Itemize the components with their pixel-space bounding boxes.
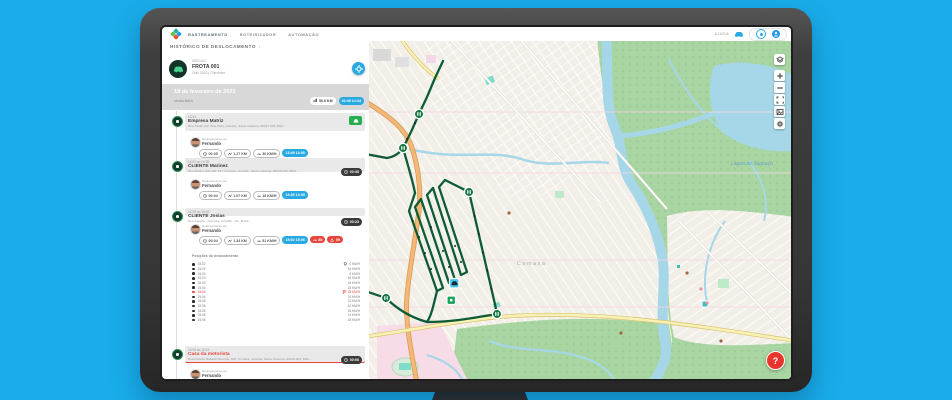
route-icon: [228, 152, 232, 156]
timeline-node: [172, 116, 183, 127]
timeline-node: [172, 211, 183, 222]
satellite-button[interactable]: [774, 106, 785, 117]
clock-icon: [203, 239, 207, 243]
fullscreen-button[interactable]: [774, 94, 785, 105]
trip-timerange-badge: 13:49 14:00: [282, 149, 307, 157]
stop-address: Rua Albano Schmidt, 517, Comasa, Joinvil…: [188, 169, 333, 173]
chart-icon: [313, 98, 318, 103]
satellite-icon: [776, 108, 784, 116]
layers-button[interactable]: [774, 54, 785, 65]
screen: RASTREAMENTOROTEIRIZADORAUTOMAÇÃO AJUDA …: [162, 27, 791, 379]
menu-item-rastreamento[interactable]: RASTREAMENTO: [188, 32, 228, 37]
layers-icon: [776, 56, 784, 64]
timeline-node: [172, 349, 183, 360]
map[interactable]: Comasa Lagoa do Saguaçu ?: [369, 41, 791, 379]
history-panel: HISTÓRICO DE DESLOCAMENTO› VEÍCULO FROTA…: [162, 41, 370, 379]
selected-position-marker-icon: [450, 279, 460, 289]
position-dot: [192, 268, 195, 271]
position-dot: [192, 310, 195, 313]
trip-alert-badge: 09: [327, 236, 343, 243]
menu-item-roteirizador[interactable]: ROTEIRIZADOR: [240, 32, 276, 37]
map-help-button[interactable]: ?: [766, 351, 785, 370]
driver-avatar: [190, 224, 201, 235]
gauge-icon: [257, 152, 261, 156]
settings-icon: [776, 120, 784, 128]
zoom-out-button[interactable]: [774, 82, 785, 93]
menu-item-automação[interactable]: AUTOMAÇÃO: [288, 32, 319, 37]
trip-detail: Deslocamento por Fernando00:04 1.07 KM 1…: [190, 179, 366, 199]
gauge-icon: [257, 239, 261, 243]
trip-speed-badge: 18 KM/H: [253, 191, 281, 200]
main-menu: RASTREAMENTOROTEIRIZADORAUTOMAÇÃO: [188, 27, 319, 41]
driver-avatar: [190, 369, 201, 379]
show-route-button[interactable]: [349, 116, 362, 125]
compass-icon[interactable]: [756, 29, 766, 39]
vehicle-model: Onix 2020 | Chevrolet: [192, 71, 225, 75]
stop-duration-badge: 00:35: [341, 168, 362, 176]
stop-address: Rua Prefeito Baltazar Buschle, 825, Coma…: [188, 357, 333, 361]
trip-distance-badge: 1.07 KM: [224, 191, 251, 200]
stop-address: Rua Itaperiú - Comasa, Joinville - SC, B…: [188, 219, 333, 223]
clock-icon: [203, 152, 207, 156]
trip-driver-name: Fernando: [202, 183, 221, 188]
trip-driver-name: Fernando: [202, 228, 221, 233]
stop-marker-icon: [492, 309, 501, 318]
position-speed: 18 KM/H: [348, 318, 360, 322]
trip-speed-badge: 30 KM/H: [253, 149, 281, 158]
help-link[interactable]: AJUDA: [715, 32, 729, 36]
position-dot: [192, 300, 195, 303]
stop-marker-icon: [381, 293, 390, 302]
app-logo-icon: [171, 29, 181, 39]
position-dot: [192, 296, 195, 299]
gauge-icon: [313, 238, 317, 242]
stop-marker-icon: [398, 143, 407, 152]
app-topbar: RASTREAMENTOROTEIRIZADORAUTOMAÇÃO AJUDA: [162, 27, 791, 42]
map-canvas: Comasa Lagoa do Saguaçu: [369, 41, 791, 379]
settings-button[interactable]: [774, 118, 785, 129]
client-marker-icon: [447, 296, 456, 305]
stop-marker-icon: [464, 187, 473, 196]
zoom-in-icon: [776, 72, 784, 80]
user-avatar-icon[interactable]: [772, 30, 780, 38]
timeline-stop-card[interactable]: 13:49 Empresa Matriz Rua Xavier Arp, Boa…: [185, 113, 365, 131]
trip-duration-badge: 00:04: [199, 191, 222, 200]
trip-detail: Deslocamento por Fernando: [190, 369, 366, 379]
timeline-node: [172, 161, 183, 172]
water-label: Lagoa do Saguaçu: [731, 161, 773, 167]
account-pill: [749, 28, 787, 41]
trip-timerange-badge: 14:35 14:39: [282, 191, 307, 199]
position-dot: [192, 277, 195, 280]
driver-avatar: [190, 137, 201, 148]
position-dot: [192, 286, 195, 289]
position-dot: [192, 291, 195, 294]
trip-duration-badge: 00:05: [199, 149, 222, 158]
vehicle-name: FROTA 001: [192, 64, 219, 70]
trip-driver-name: Fernando: [202, 141, 221, 146]
position-dot: [192, 305, 195, 308]
clock-icon: [344, 170, 348, 174]
gauge-icon: [257, 194, 261, 198]
district-label: Comasa: [517, 261, 546, 267]
stop-duration-badge: 00:06: [341, 356, 362, 364]
route-icon: [228, 239, 232, 243]
zoom-out-icon: [776, 84, 784, 92]
locate-vehicle-button[interactable]: [352, 62, 365, 75]
driver-avatar: [190, 179, 201, 190]
timeline-stop-card[interactable]: 15:06 ao 15:12 Casa da motorista Rua Pre…: [185, 346, 365, 363]
trip-timerange-badge: 15:02 15:06: [282, 236, 307, 244]
breadcrumb: HISTÓRICO DE DESLOCAMENTO›: [170, 44, 261, 49]
stop-address: Rua Xavier Arp, Boa Vista, Joinville, Sa…: [188, 124, 333, 128]
position-dot: [192, 282, 195, 285]
timeline-stop-card[interactable]: 14:39 ao 15:02 CLIENTE Josias Rua Itaper…: [185, 208, 365, 216]
fullscreen-icon: [776, 96, 784, 104]
positions-title: Posições do deslocamento: [192, 254, 238, 258]
timeline-stop-card[interactable]: 14:00 ao 14:35 CLIENTE Marinez Rua Alban…: [185, 158, 365, 172]
trip-duration-badge: 00:04: [199, 236, 222, 245]
position-dot: [192, 263, 195, 266]
trip-speed-badge: 51 KM/H: [253, 236, 281, 245]
position-dot: [192, 314, 195, 317]
trip-alert-badge: 85: [310, 236, 326, 243]
timeline-line: [176, 111, 177, 379]
route-icon: [228, 194, 232, 198]
stop-marker-icon: [414, 109, 423, 118]
date-header[interactable]: 19 de fevereiro de 2021 sexta-feira 50.6…: [162, 84, 369, 110]
vehicle-kind-label: VEÍCULO: [192, 59, 206, 63]
vehicle-avatar: [169, 60, 187, 78]
clock-icon: [203, 194, 207, 198]
trip-detail: Deslocamento por Fernando00:05 1.27 KM 3…: [190, 137, 366, 157]
position-row[interactable]: 15:06 18 KM/H: [192, 318, 360, 323]
day-timerange-badge: 02:49 14:34: [339, 97, 364, 105]
trip-distance-badge: 1.34 KM: [224, 236, 251, 245]
position-dot: [192, 319, 195, 322]
date-title: 19 de fevereiro de 2021: [174, 89, 236, 95]
zoom-in-button[interactable]: [774, 70, 785, 81]
date-weekday: sexta-feira: [174, 98, 193, 103]
position-dot: [192, 272, 195, 275]
alert-icon: [330, 238, 334, 242]
trip-distance-badge: 1.27 KM: [224, 149, 251, 158]
position-time: 15:06: [198, 318, 222, 322]
day-distance-badge: 50.6 KM: [310, 97, 336, 105]
trip-driver-name: Fernando: [202, 373, 221, 378]
clock-icon: [344, 358, 348, 362]
trip-detail: Deslocamento por Fernando00:04 1.34 KM 5…: [190, 224, 366, 244]
car-icon: [353, 118, 359, 124]
